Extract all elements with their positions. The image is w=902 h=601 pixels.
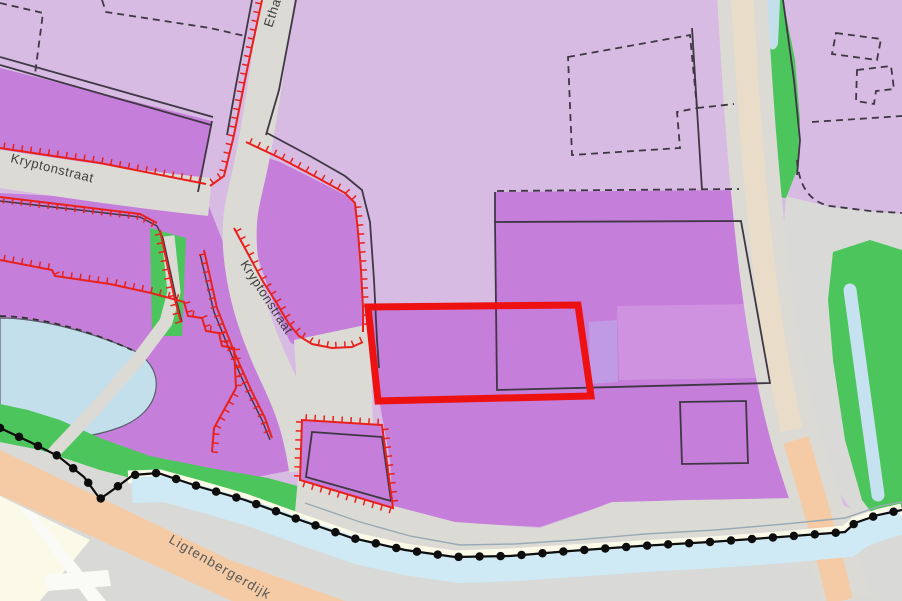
zone-central-patch-blue bbox=[589, 320, 618, 384]
zone-central-patch-light bbox=[617, 304, 757, 380]
map-canvas[interactable]: Kryptonstraat Kryptonstraat Ethaanstraat… bbox=[0, 0, 902, 601]
map-viewport: Kryptonstraat Kryptonstraat Ethaanstraat… bbox=[0, 0, 902, 601]
